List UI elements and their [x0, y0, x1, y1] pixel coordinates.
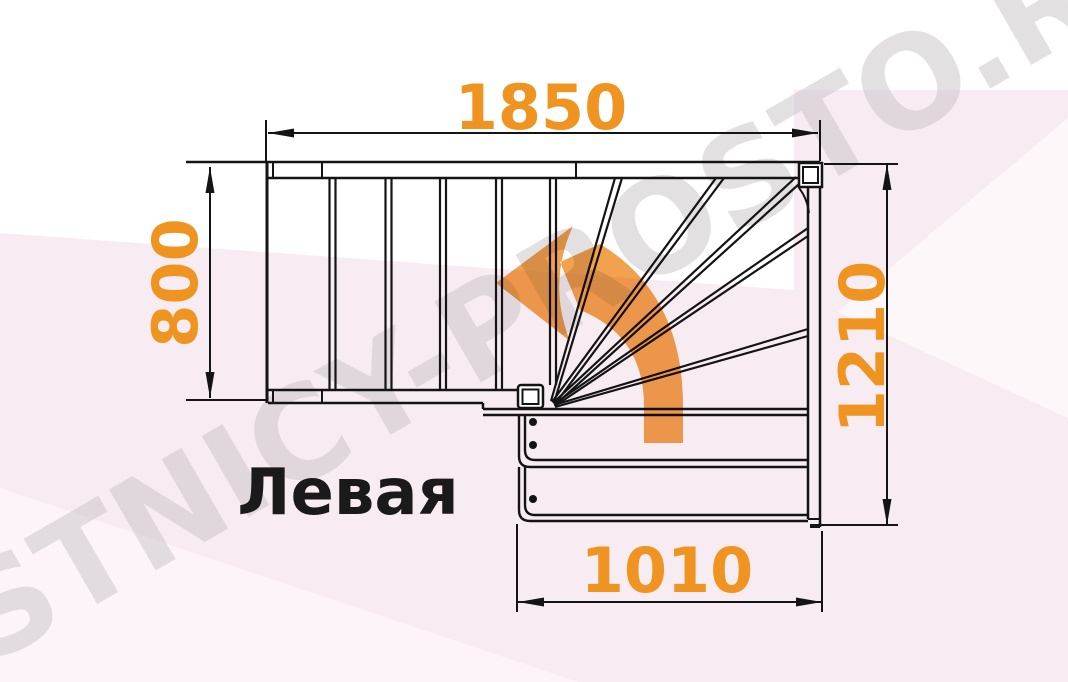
corner-newel-post	[799, 163, 822, 187]
dimension-top-value: 1850	[455, 71, 628, 144]
dimension-left-value: 800	[139, 218, 212, 347]
staircase-plan-drawing: LESTNICY-PROSTO.RU	[0, 0, 1068, 682]
center-newel-post	[518, 385, 543, 408]
stair-type-label: Левая	[237, 456, 458, 530]
dimension-bottom-value: 1010	[581, 534, 754, 607]
staircase-plan-canvas: LESTNICY-PROSTO.RU	[0, 0, 1068, 682]
dimension-right-value: 1210	[826, 261, 899, 434]
dimension-arrow-left	[268, 129, 294, 138]
dimension-arrow-up	[206, 167, 215, 193]
